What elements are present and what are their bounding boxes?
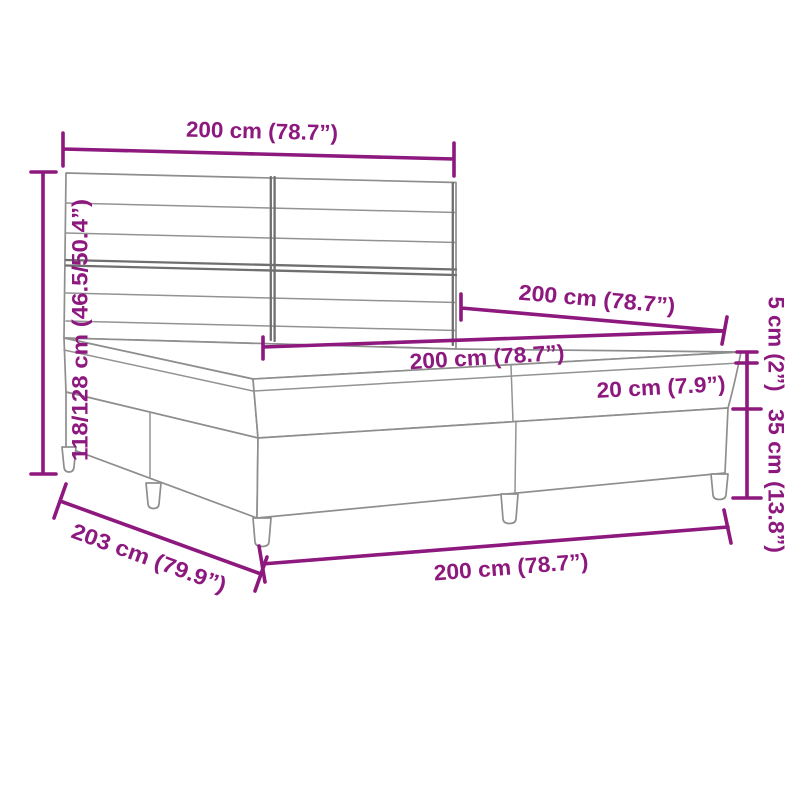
leg [146,483,161,509]
leg [501,494,518,524]
leg [253,518,271,547]
dim-total-height: 118/128 cm (46.5/50.4”) [31,172,93,474]
dimension-diagram: 200 cm (78.7”) 118/128 cm (46.5/50.4”) 2… [0,0,800,800]
dim-total-height-label: 118/128 cm (46.5/50.4”) [68,199,93,461]
dim-line [31,172,56,474]
dim-base-width-label: 200 cm (78.7”) [433,548,589,585]
dim-topper-thickness-label: 5 cm (2”) [764,297,789,392]
bed-dimension-drawing: 200 cm (78.7”) 118/128 cm (46.5/50.4”) 2… [0,0,800,800]
leg [711,474,728,500]
dim-bed-length-label: 200 cm (78.7”) [518,280,677,319]
dim-base-height-label: 35 cm (13.8”) [764,409,789,553]
base-half-seam-front [515,421,516,492]
dim-bed-length: 200 cm (78.7”) [461,280,724,331]
dim-right-bracket: 5 cm (2”) 35 cm (13.8”) [733,297,789,554]
dim-base-length-label: 203 cm (79.9”) [68,518,230,597]
dim-base-width: 200 cm (78.7”) [259,510,731,586]
headboard [64,173,456,349]
dim-headboard-width: 200 cm (78.7”) [63,117,454,176]
dim-headboard-width-label: 200 cm (78.7”) [186,117,339,146]
